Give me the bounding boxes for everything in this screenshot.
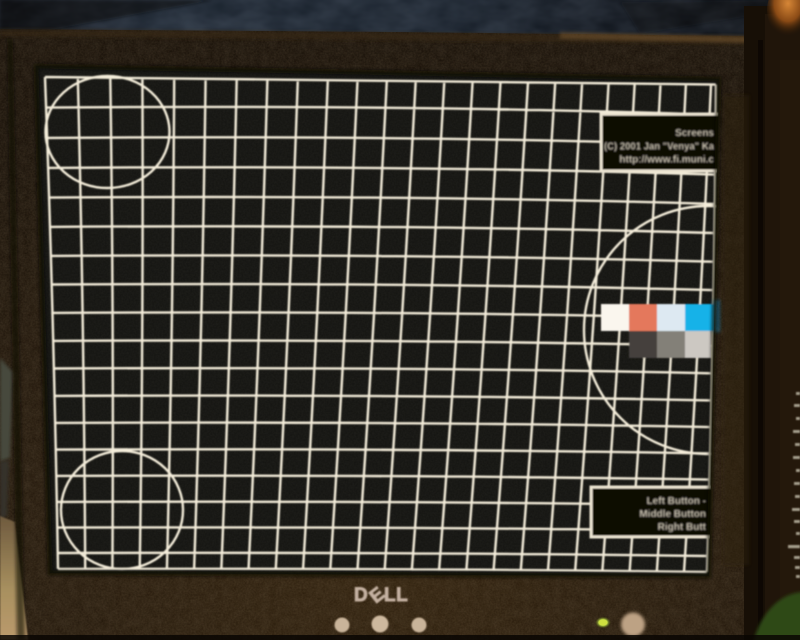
svg-text:Left Button -: Left Button - xyxy=(647,496,706,507)
svg-text:Screens: Screens xyxy=(675,128,714,139)
svg-text:LL: LL xyxy=(384,585,408,606)
svg-text:D: D xyxy=(354,585,368,606)
svg-text:http://www.fi.muni.c: http://www.fi.muni.c xyxy=(619,155,714,166)
svg-text:Right Butt: Right Butt xyxy=(658,522,707,533)
svg-text:(C) 2001 Jan "Venya" Ka: (C) 2001 Jan "Venya" Ka xyxy=(604,142,714,153)
svg-text:Middle Button: Middle Button xyxy=(639,509,706,520)
